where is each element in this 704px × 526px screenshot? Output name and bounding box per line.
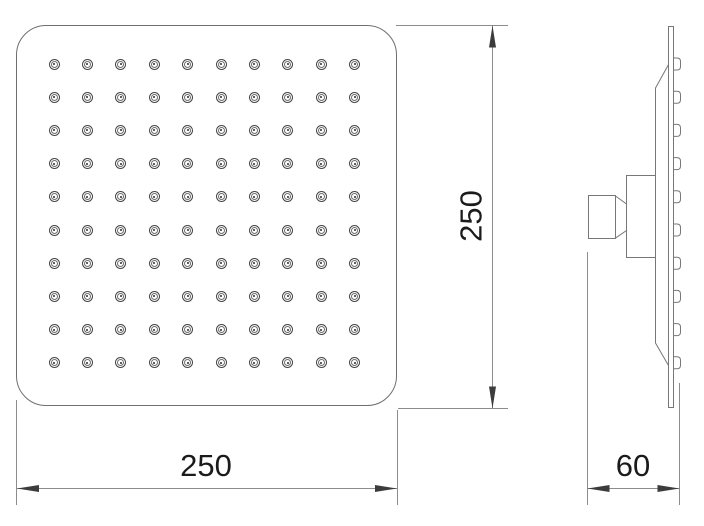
height-dimension xyxy=(396,26,508,409)
arrow-left-icon xyxy=(17,485,39,492)
nozzle-bump xyxy=(674,91,681,103)
height-dimension-label: 250 xyxy=(456,190,487,242)
side-view-mounting-boss xyxy=(627,176,656,258)
arrow-up-icon xyxy=(489,26,496,48)
nozzle-bump xyxy=(674,357,681,369)
nozzle-bump xyxy=(674,224,681,236)
width-dimension-label: 250 xyxy=(180,450,232,481)
arrow-down-icon xyxy=(489,387,496,409)
nozzle-bump xyxy=(674,324,681,336)
arrow-right-icon xyxy=(658,485,680,492)
drawing-linework xyxy=(0,0,704,526)
arrow-left-icon xyxy=(588,485,610,492)
side-view-nozzle-bumps xyxy=(674,58,681,369)
arrow-right-icon xyxy=(375,485,397,492)
technical-drawing-canvas: 250 250 60 xyxy=(0,0,704,526)
nozzle-bump xyxy=(674,257,681,269)
nozzle-bump xyxy=(674,58,681,70)
side-view xyxy=(589,27,681,408)
side-view-face-plate xyxy=(669,27,674,408)
nozzle-bump xyxy=(674,158,681,170)
side-view-connector-nut xyxy=(589,196,616,239)
nozzle-bump xyxy=(674,124,681,136)
nozzle-bump xyxy=(674,290,681,302)
side-view-inlet-cone xyxy=(616,196,627,238)
depth-dimension-label: 60 xyxy=(616,450,650,481)
nozzle-bump xyxy=(674,191,681,203)
